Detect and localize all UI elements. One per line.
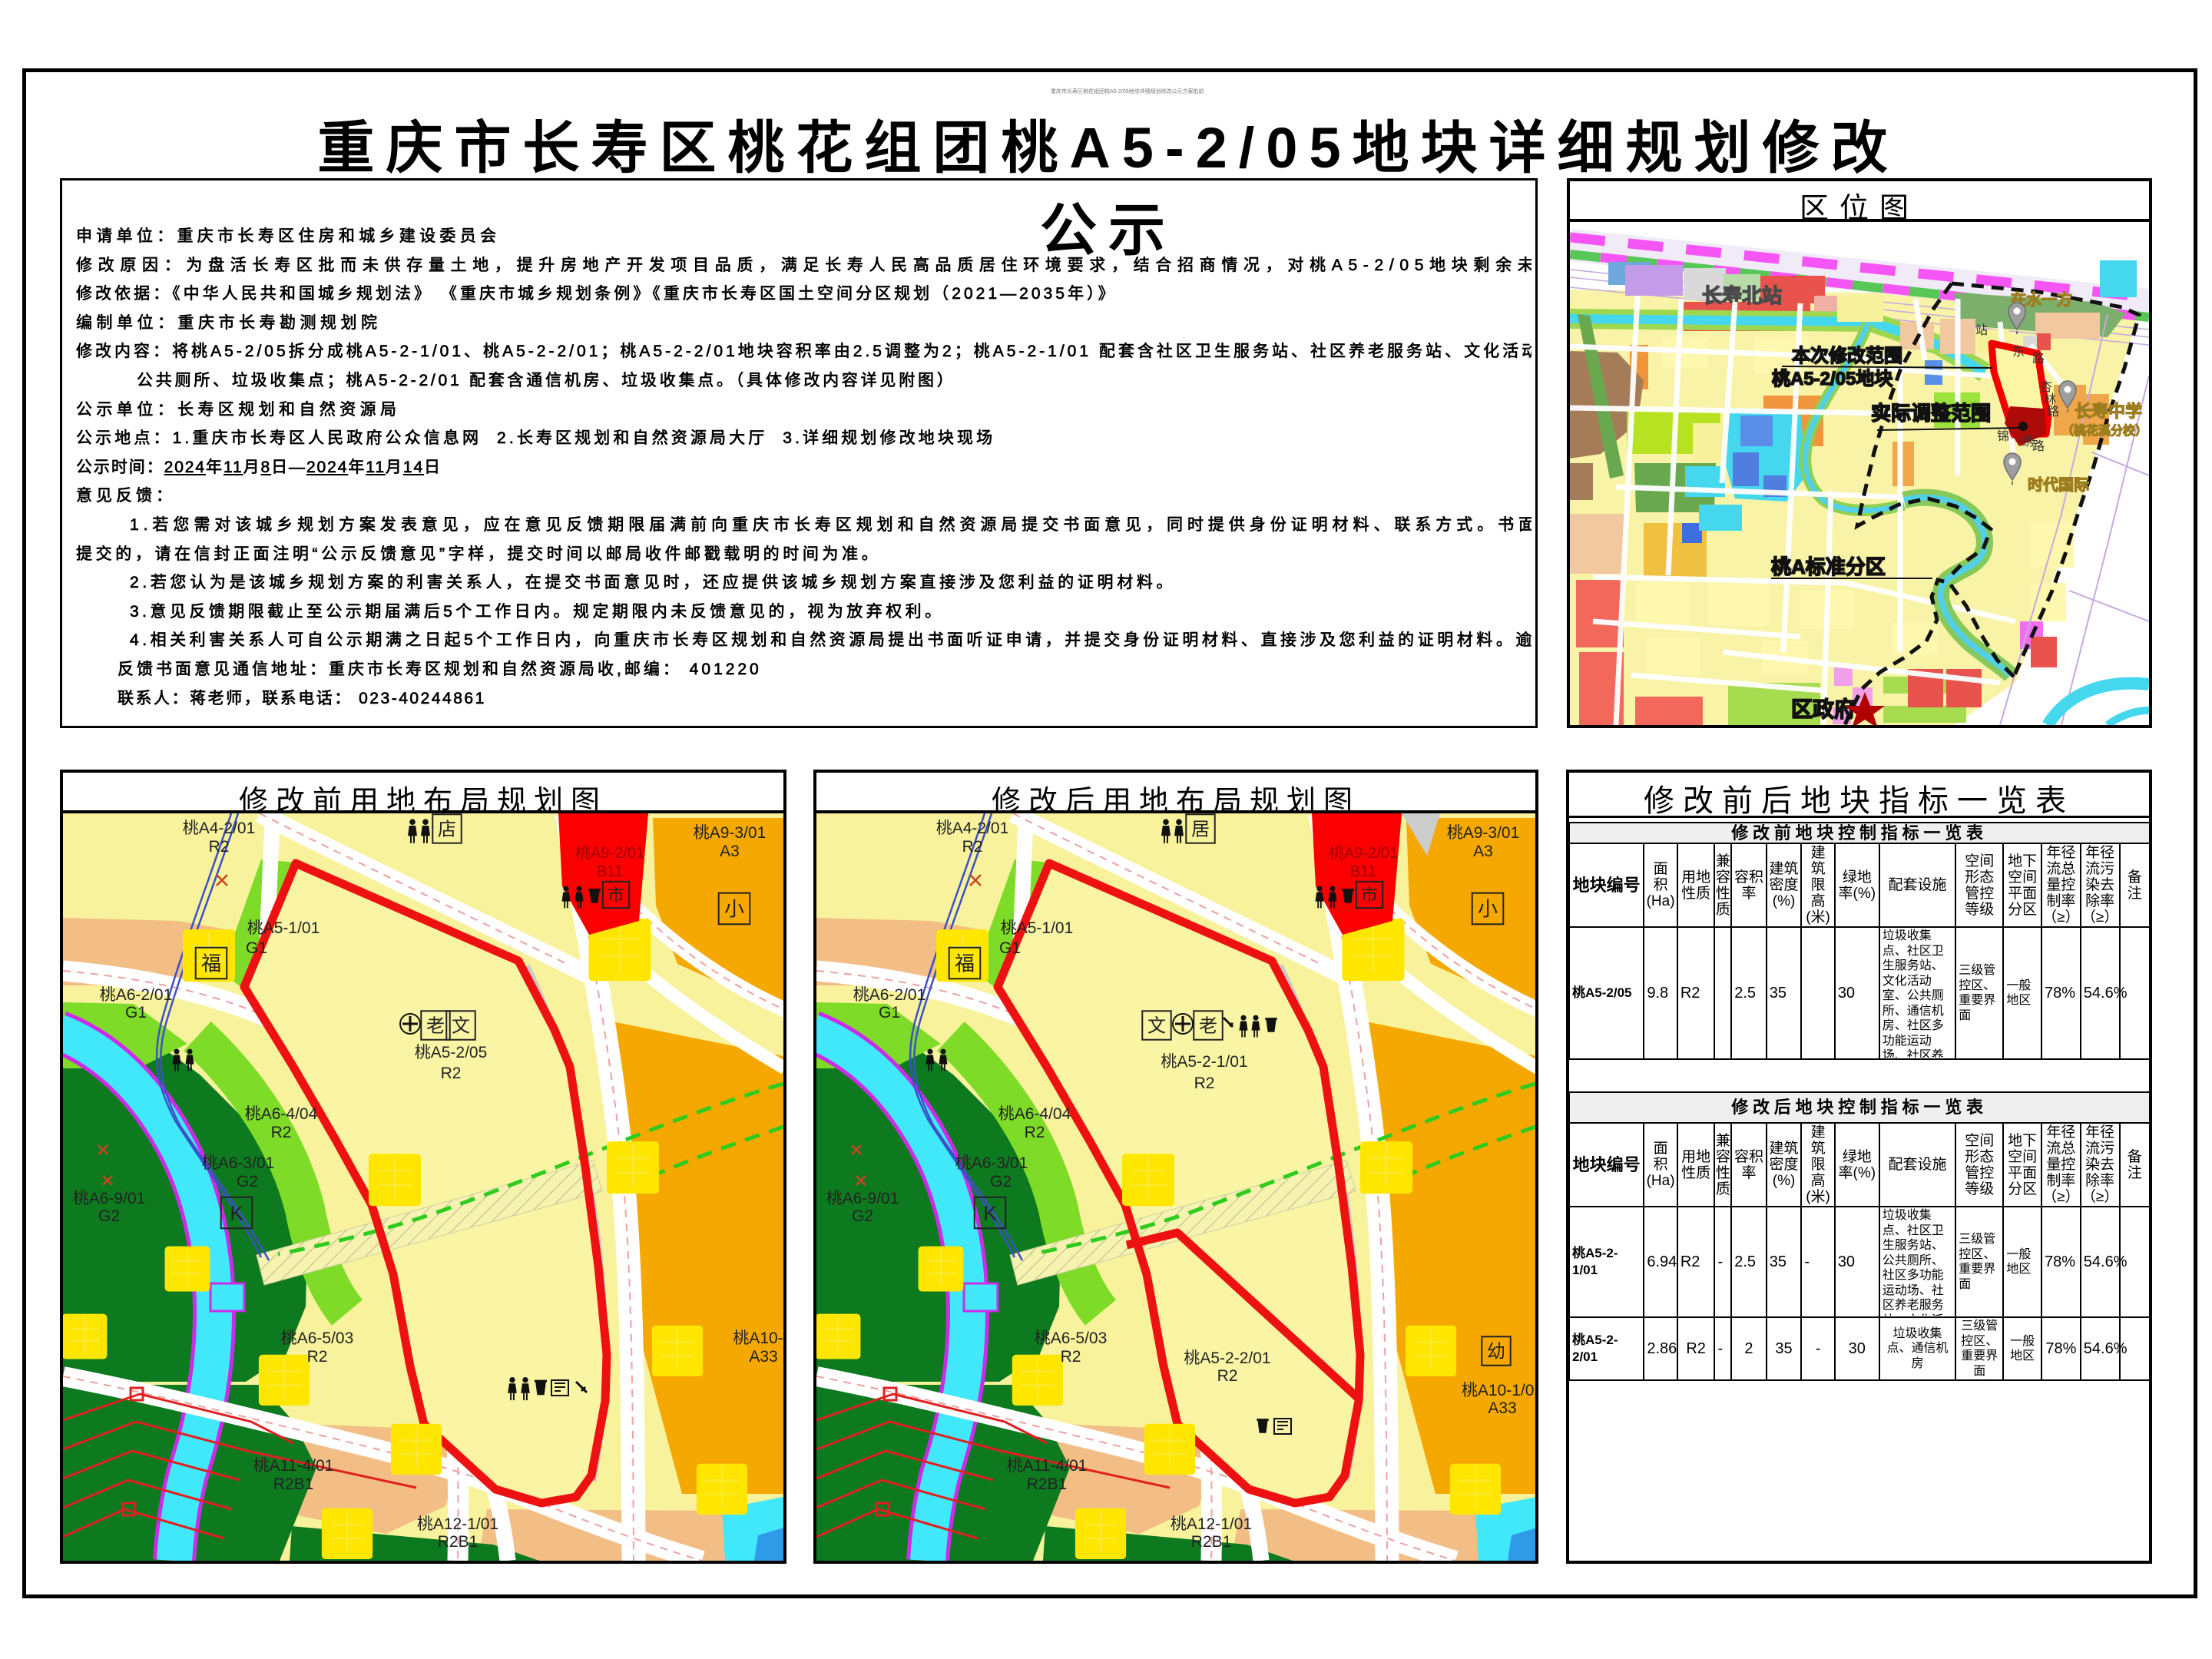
svg-text:R2: R2: [271, 1124, 292, 1141]
svg-text:杏: 杏: [2040, 380, 2052, 394]
svg-text:桃A6-9/01: 桃A6-9/01: [73, 1190, 146, 1207]
svg-text:桃A5-2-2/01: 桃A5-2-2/01: [1184, 1349, 1270, 1367]
svg-text:锦: 锦: [1997, 429, 2009, 443]
svg-text:桃A9-3/01: 桃A9-3/01: [694, 824, 767, 842]
svg-text:G2: G2: [98, 1207, 120, 1225]
svg-text:A3: A3: [1473, 843, 1493, 860]
svg-text:R2: R2: [1025, 1124, 1045, 1141]
svg-text:桃A4-2/01: 桃A4-2/01: [936, 820, 1009, 837]
svg-text:G1: G1: [999, 939, 1021, 957]
svg-text:福: 福: [955, 952, 975, 975]
svg-text:G2: G2: [237, 1173, 258, 1190]
svg-text:幼: 幼: [1487, 1342, 1505, 1363]
svg-text:G1: G1: [879, 1004, 900, 1022]
svg-text:桃A5-2-1/01: 桃A5-2-1/01: [1161, 1053, 1247, 1071]
svg-text:桃A9-3/01: 桃A9-3/01: [1447, 824, 1520, 842]
svg-text:桃A5-1/01: 桃A5-1/01: [247, 919, 320, 937]
svg-text:R2: R2: [441, 1065, 462, 1082]
svg-text:B11: B11: [597, 863, 623, 880]
svg-text:福: 福: [201, 952, 221, 975]
svg-text:桃A6-9/01: 桃A6-9/01: [826, 1190, 899, 1207]
svg-text:R2: R2: [1194, 1075, 1215, 1092]
svg-text:R2B1: R2B1: [1027, 1475, 1068, 1493]
svg-text:东: 东: [2012, 345, 2025, 359]
svg-text:桃A5-1/01: 桃A5-1/01: [1001, 919, 1074, 937]
svg-text:R2: R2: [209, 838, 230, 856]
svg-text:文: 文: [452, 1016, 470, 1037]
svg-text:文: 文: [1147, 1016, 1166, 1037]
svg-text:桃A10-1/02: 桃A10-1/02: [1462, 1382, 1535, 1399]
svg-text:（桃花溪分校）: （桃花溪分校）: [2061, 423, 2147, 438]
svg-text:林: 林: [2044, 392, 2056, 406]
svg-text:G1: G1: [125, 1004, 147, 1022]
svg-text:R2: R2: [307, 1348, 328, 1366]
svg-text:本次修改范围: 本次修改范围: [1792, 346, 1902, 366]
svg-text:长寿中学: 长寿中学: [2075, 402, 2142, 421]
svg-text:桃A9-2/01: 桃A9-2/01: [1329, 844, 1398, 862]
svg-text:区政府: 区政府: [1791, 697, 1856, 721]
svg-text:站: 站: [1975, 323, 1988, 337]
svg-text:R2: R2: [1217, 1367, 1238, 1385]
svg-text:桃A5-2/05地块: 桃A5-2/05地块: [1772, 369, 1892, 389]
svg-text:桃A9-2/01: 桃A9-2/01: [575, 844, 644, 862]
svg-text:长寿北站: 长寿北站: [1702, 284, 1782, 307]
svg-text:实际调整范围: 实际调整范围: [1871, 402, 1991, 425]
svg-text:A33: A33: [749, 1348, 777, 1366]
svg-text:桃A6-4/04: 桃A6-4/04: [245, 1105, 318, 1123]
svg-text:桃A6-2/01: 桃A6-2/01: [853, 986, 926, 1004]
svg-text:R2: R2: [1061, 1348, 1081, 1366]
svg-text:A33: A33: [1488, 1399, 1516, 1417]
svg-text:桃A11-4/01: 桃A11-4/01: [253, 1457, 334, 1475]
svg-text:桃A11-4/01: 桃A11-4/01: [1007, 1457, 1088, 1475]
svg-text:桃A6-3/01: 桃A6-3/01: [955, 1154, 1028, 1172]
svg-text:路: 路: [2032, 439, 2045, 453]
svg-text:桃A6-4/04: 桃A6-4/04: [998, 1105, 1071, 1123]
svg-text:市: 市: [1361, 886, 1378, 905]
svg-text:A3: A3: [720, 843, 740, 860]
svg-text:B11: B11: [1350, 863, 1376, 880]
svg-text:桃A6-5/03: 桃A6-5/03: [281, 1330, 354, 1347]
svg-text:桃A4-2/01: 桃A4-2/01: [183, 820, 256, 837]
svg-text:时代国际: 时代国际: [2028, 476, 2089, 494]
svg-text:店: 店: [438, 820, 456, 840]
svg-text:桃A12-1/01: 桃A12-1/01: [1171, 1515, 1252, 1533]
svg-text:桃A标准分区: 桃A标准分区: [1771, 555, 1886, 578]
svg-text:R2B1: R2B1: [1191, 1533, 1232, 1551]
svg-text:G2: G2: [852, 1207, 873, 1225]
svg-text:路: 路: [2047, 405, 2059, 419]
svg-text:K: K: [230, 1201, 243, 1224]
svg-text:K: K: [983, 1201, 997, 1224]
svg-text:桃A6-5/03: 桃A6-5/03: [1035, 1330, 1108, 1347]
svg-text:R2B1: R2B1: [438, 1533, 478, 1551]
svg-text:老: 老: [1199, 1016, 1217, 1037]
svg-text:桃A5-2/05: 桃A5-2/05: [415, 1044, 488, 1061]
svg-text:桃A10-: 桃A10-: [733, 1330, 783, 1347]
svg-text:R2: R2: [962, 838, 983, 856]
svg-text:桃A12-1/01: 桃A12-1/01: [417, 1515, 498, 1533]
svg-text:路: 路: [2032, 352, 2045, 366]
svg-text:老: 老: [426, 1016, 445, 1037]
svg-text:G1: G1: [246, 939, 267, 957]
svg-text:居: 居: [1191, 820, 1210, 840]
svg-text:桃A6-3/01: 桃A6-3/01: [202, 1154, 275, 1172]
svg-text:R2B1: R2B1: [273, 1475, 314, 1493]
svg-text:桃A6-2/01: 桃A6-2/01: [100, 986, 173, 1004]
svg-text:小: 小: [724, 897, 744, 920]
svg-text:小: 小: [1478, 897, 1498, 920]
svg-text:G2: G2: [990, 1173, 1012, 1190]
svg-text:市: 市: [608, 886, 624, 905]
